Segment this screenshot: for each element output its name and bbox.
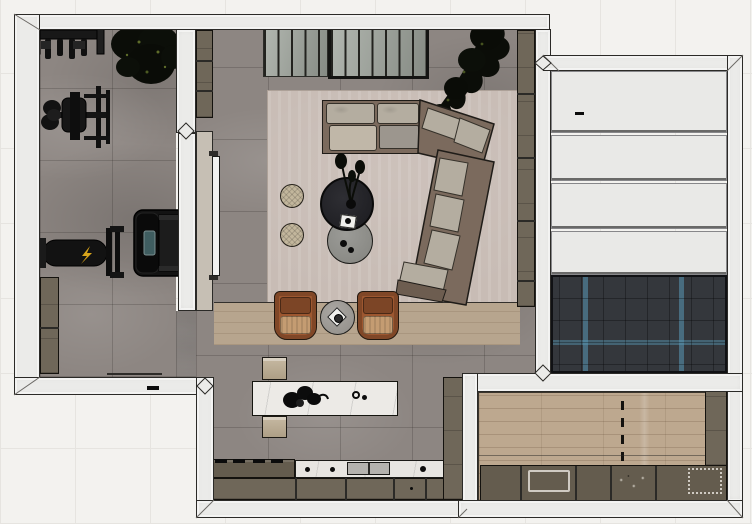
wall-bevel-overlay xyxy=(0,0,752,524)
floor-plan-canvas xyxy=(0,0,752,524)
